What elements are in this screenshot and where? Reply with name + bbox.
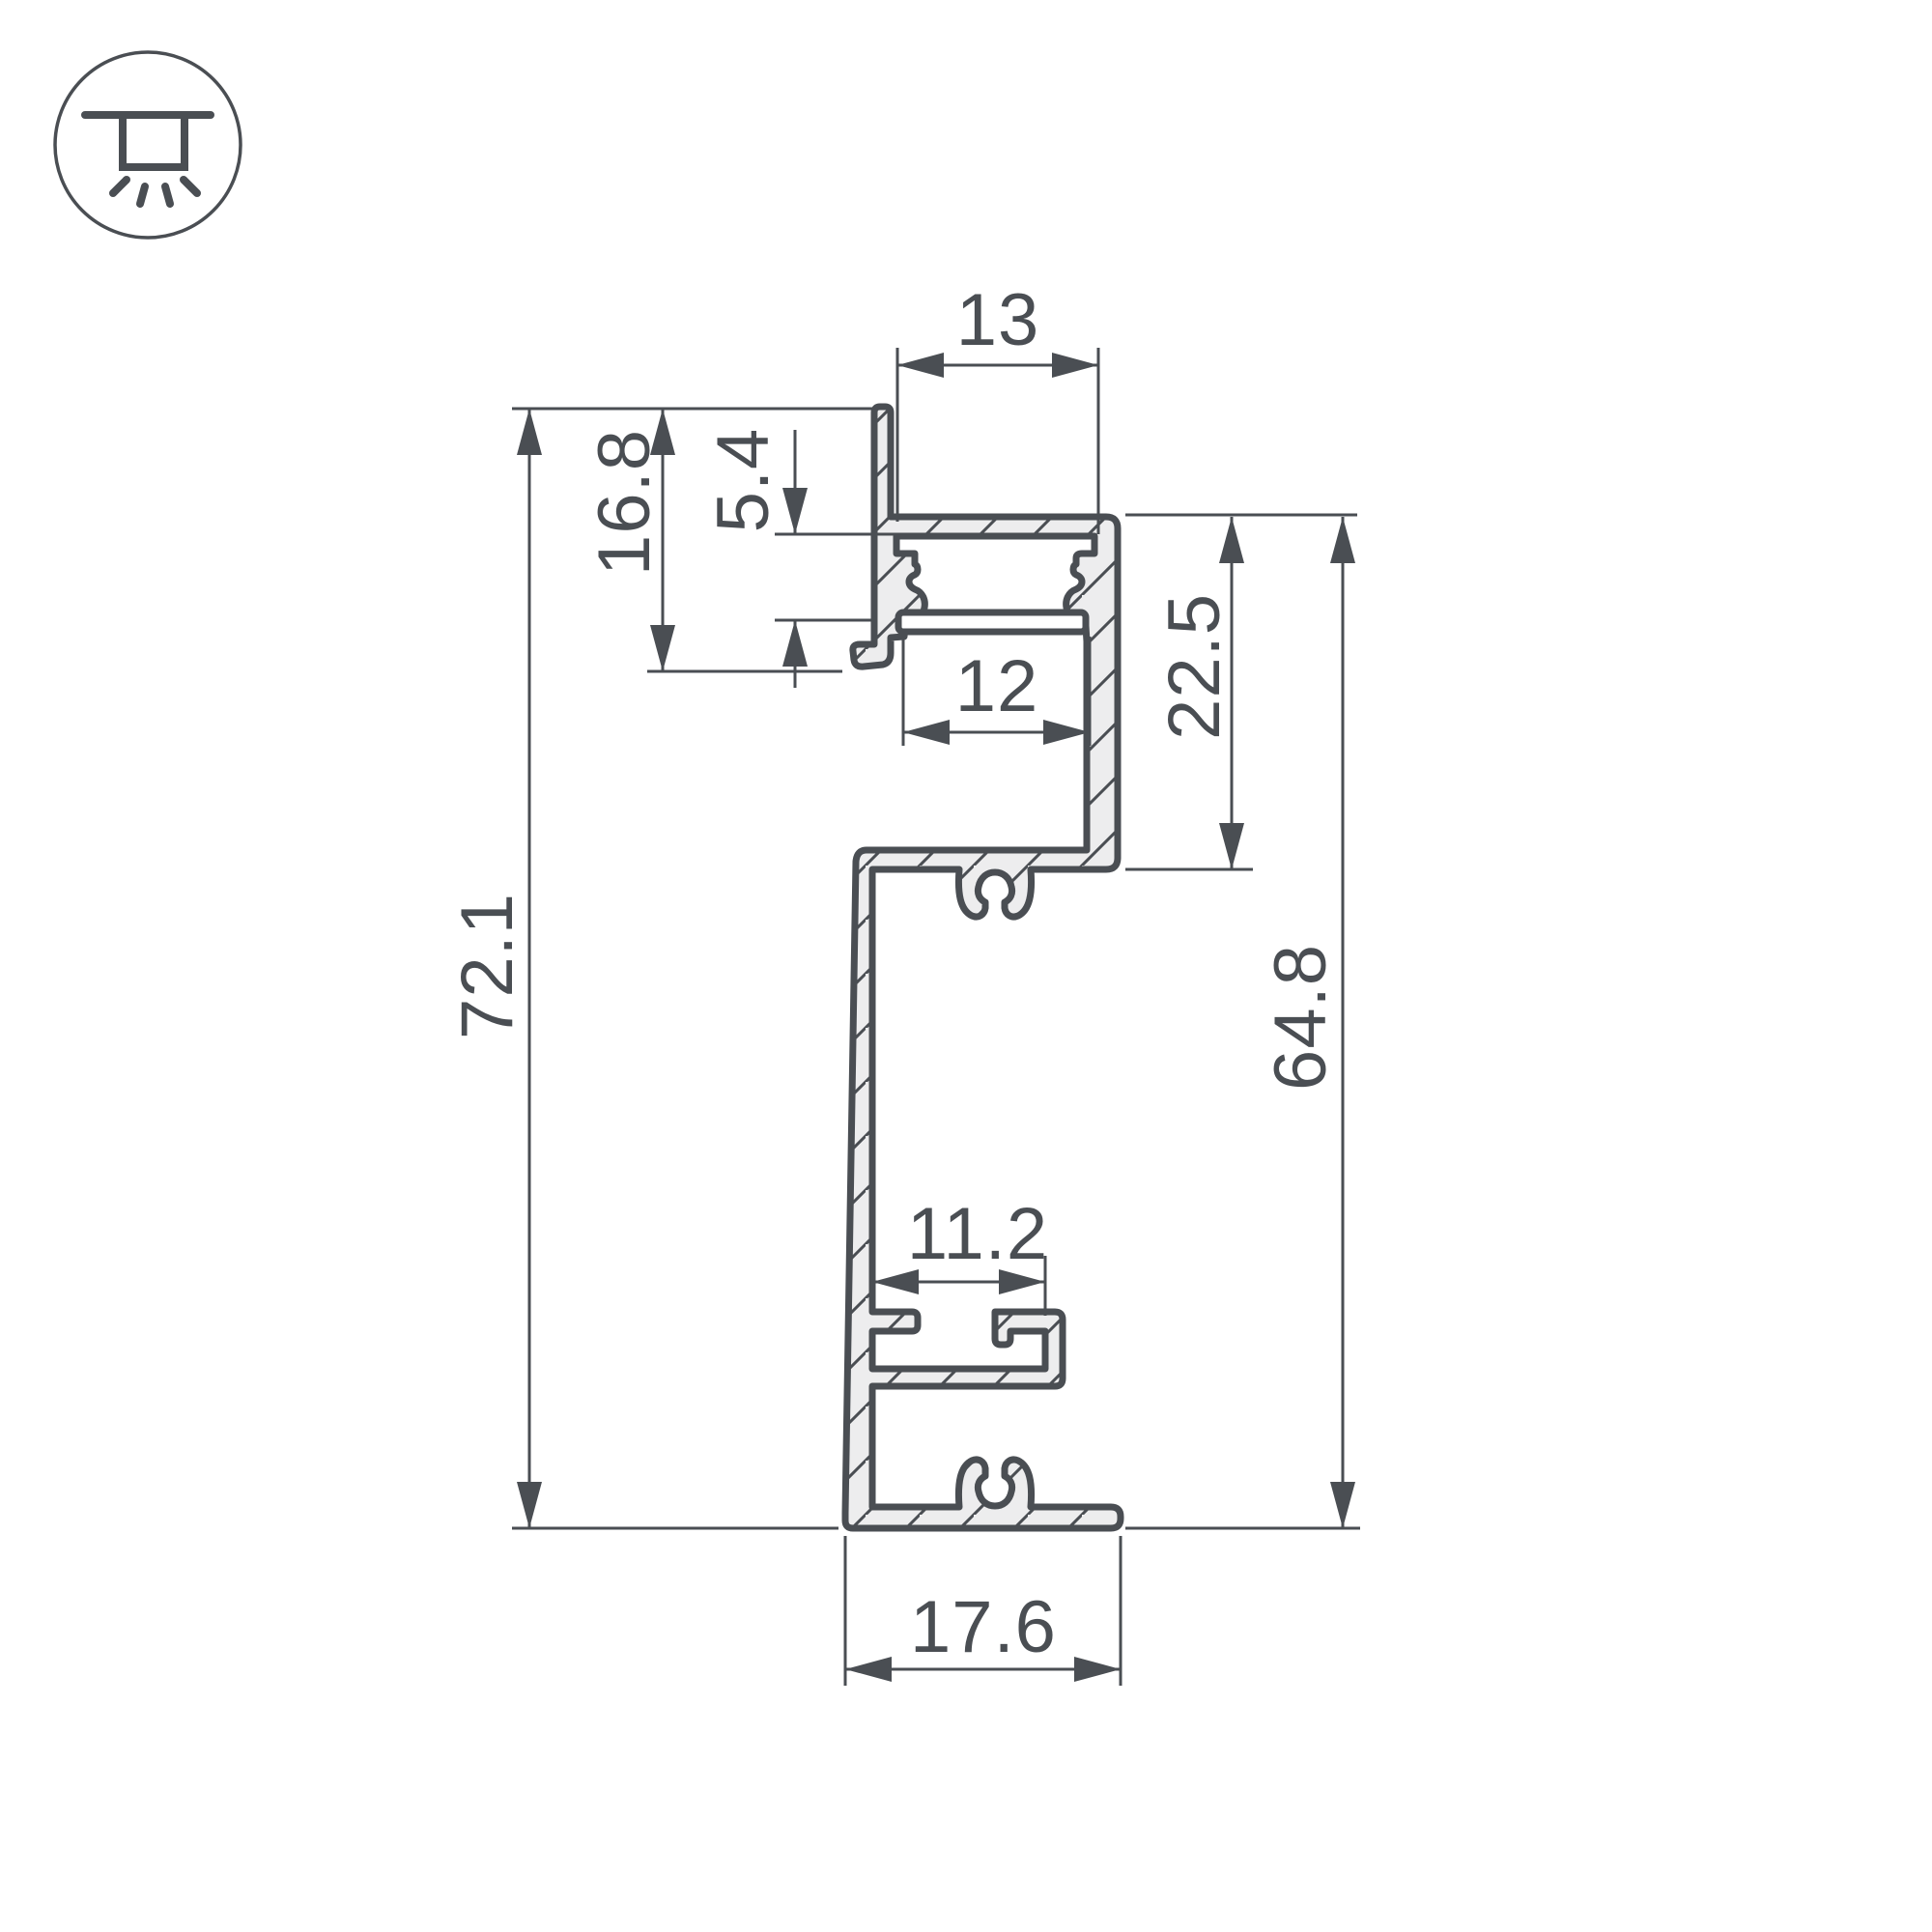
dimension-72-1: 72.1 <box>446 409 542 1528</box>
dim-label-opening-width: 12 <box>955 645 1039 727</box>
dim-label-top-channel-width: 13 <box>956 279 1040 361</box>
dim-label-overall-height: 72.1 <box>446 893 528 1039</box>
arrow-right <box>1043 720 1090 745</box>
dimension-13: 13 <box>897 279 1098 378</box>
dimension-12: 12 <box>903 645 1090 745</box>
dim-label-led-recess-depth: 5.4 <box>702 428 784 533</box>
dimension-17-6: 17.6 <box>845 1586 1121 1682</box>
arrow-down <box>650 625 675 671</box>
arrow-right <box>1052 353 1098 378</box>
arrow-left <box>897 353 944 378</box>
dim-label-upper-section-height: 22.5 <box>1153 593 1236 740</box>
arrow-up <box>1330 517 1355 563</box>
dimension-64-8: 64.8 <box>1260 517 1355 1528</box>
profile-body <box>845 407 1121 1528</box>
arrow-right <box>1074 1657 1121 1682</box>
icon-fixture-box <box>123 115 185 167</box>
arrow-down <box>1330 1482 1355 1528</box>
dim-label-body-height: 64.8 <box>1260 944 1342 1091</box>
recessed-light-icon <box>55 52 241 238</box>
diffuser-cover <box>898 612 1086 632</box>
dimension-16-8: 16.8 <box>583 409 675 671</box>
arrow-down <box>1219 823 1244 869</box>
arrow-up <box>782 620 808 667</box>
arrow-left <box>845 1657 892 1682</box>
arrow-up <box>517 409 542 455</box>
dim-label-base-width: 17.6 <box>910 1586 1057 1668</box>
dim-label-mount-slot-width: 11.2 <box>907 1193 1048 1275</box>
arrow-up <box>1219 517 1244 563</box>
dimension-5-4: 5.4 <box>702 428 808 688</box>
dim-label-flange-height: 16.8 <box>583 429 666 576</box>
profile-cross-section <box>845 407 1121 1528</box>
arrow-down <box>782 488 808 534</box>
dimension-22-5: 22.5 <box>1153 517 1244 869</box>
arrow-left <box>903 720 950 745</box>
icon-light-rays <box>113 180 197 204</box>
arrow-down <box>517 1482 542 1528</box>
technical-drawing-canvas: 13 16.8 5.4 12 22.5 72.1 64.8 <box>0 0 1932 1932</box>
icon-circle <box>55 52 241 238</box>
dimension-11-2: 11.2 <box>872 1193 1048 1294</box>
